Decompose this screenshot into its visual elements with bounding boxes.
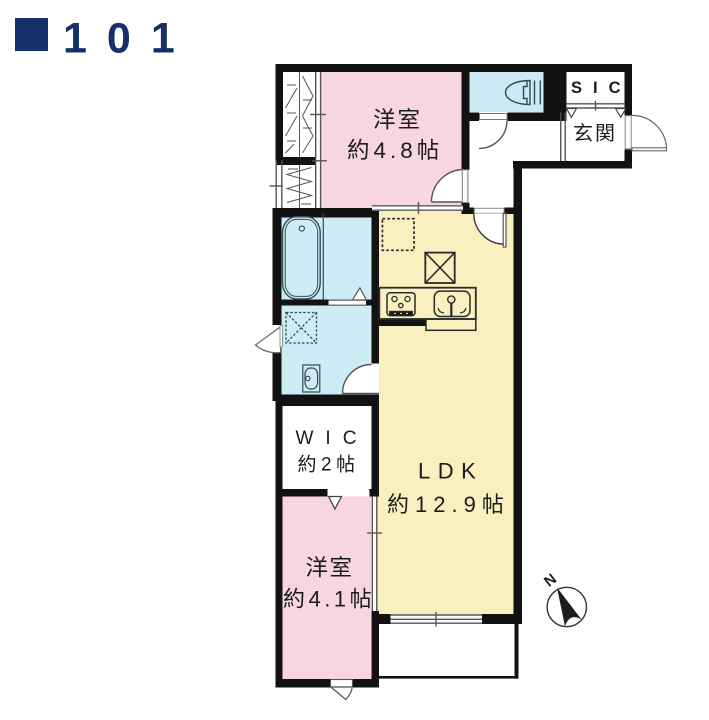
svg-text:約12.9帖: 約12.9帖: [387, 492, 510, 517]
svg-text:101: 101: [63, 15, 195, 63]
svg-text:LDK: LDK: [418, 459, 483, 484]
svg-text:約2帖: 約2帖: [298, 454, 360, 476]
svg-text:洋室: 洋室: [373, 108, 422, 133]
svg-text:洋室: 洋室: [306, 556, 354, 581]
svg-text:約4.8帖: 約4.8帖: [347, 138, 443, 163]
svg-text:玄関: 玄関: [573, 122, 617, 145]
svg-text:WIC: WIC: [296, 428, 369, 449]
svg-text:SIC: SIC: [571, 79, 632, 97]
svg-text:約4.1帖: 約4.1帖: [283, 587, 375, 612]
